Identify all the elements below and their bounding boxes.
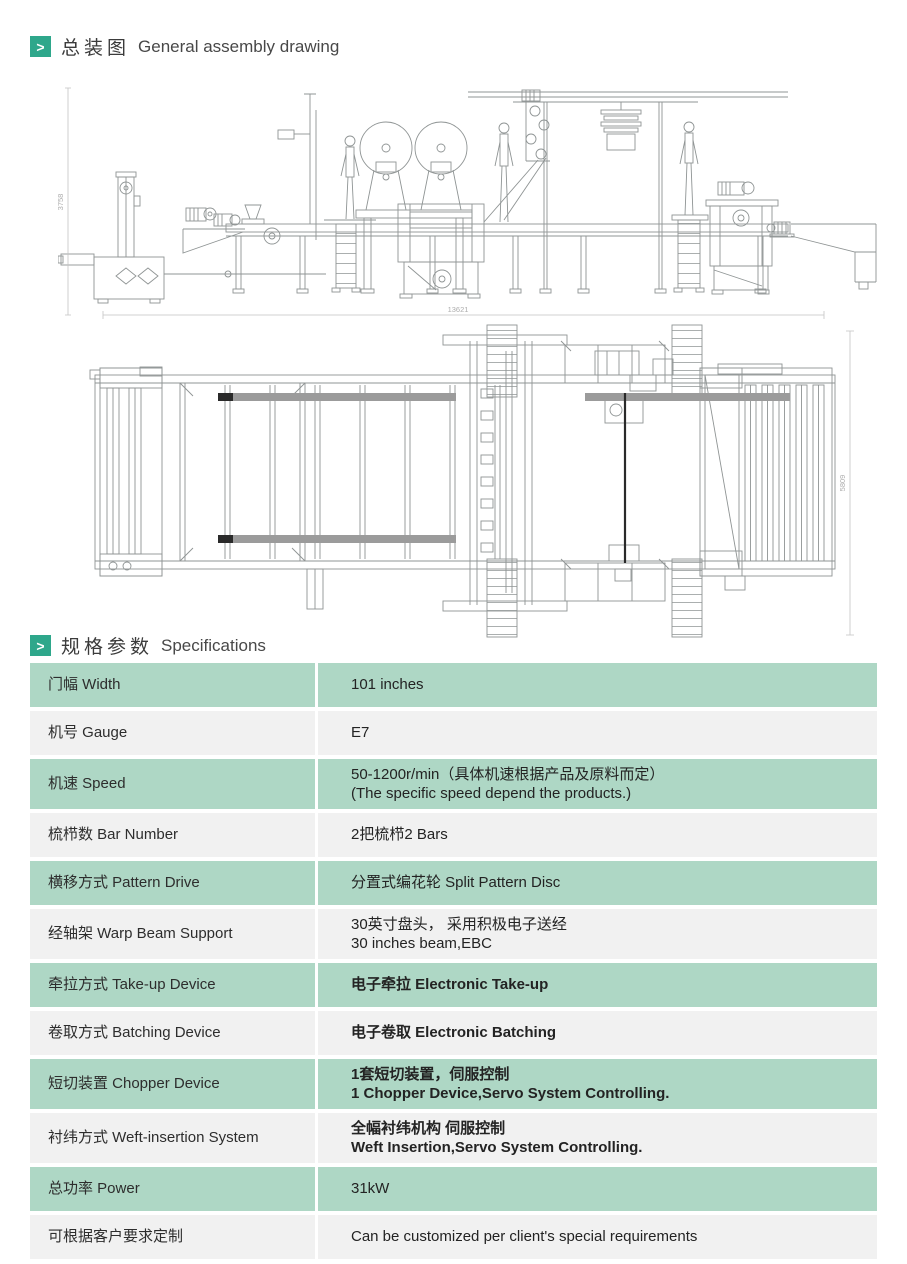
spec-row: 可根据客户要求定制Can be customized per client's …	[30, 1215, 877, 1259]
chevron-icon: >	[30, 36, 51, 57]
spec-label: 总功率 Power	[30, 1167, 315, 1211]
spec-label: 短切装置 Chopper Device	[30, 1059, 315, 1109]
spec-label: 门幅 Width	[30, 663, 315, 707]
spec-row: 门幅 Width101 inches	[30, 663, 877, 707]
spec-value: Can be customized per client's special r…	[318, 1215, 877, 1259]
spec-value: 1套短切装置，伺服控制1 Chopper Device,Servo System…	[318, 1059, 877, 1109]
spec-value: E7	[318, 711, 877, 755]
specs-table: 门幅 Width101 inches机号 GaugeE7机速 Speed50-1…	[30, 663, 877, 1259]
spec-value: 全幅衬纬机构 伺服控制Weft Insertion,Servo System C…	[318, 1113, 877, 1163]
dim-width-label: 5809	[838, 475, 847, 492]
spec-row: 横移方式 Pattern Drive分置式编花轮 Split Pattern D…	[30, 861, 877, 905]
spec-value: 电子卷取 Electronic Batching	[318, 1011, 877, 1055]
spec-value: 50-1200r/min（具体机速根据产品及原料而定）(The specific…	[318, 759, 877, 809]
spec-row: 衬纬方式 Weft-insertion System全幅衬纬机构 伺服控制Wef…	[30, 1113, 877, 1163]
spec-row: 短切装置 Chopper Device1套短切装置，伺服控制1 Chopper …	[30, 1059, 877, 1109]
spec-label: 可根据客户要求定制	[30, 1215, 315, 1259]
spec-label: 经轴架 Warp Beam Support	[30, 909, 315, 959]
catalog-page: > 总装图 General assembly drawing	[0, 0, 907, 1264]
spec-label: 横移方式 Pattern Drive	[30, 861, 315, 905]
section-title-zh: 规格参数	[61, 632, 153, 659]
general-assembly-plan-view-drawing: 5809	[85, 323, 875, 646]
dim-length-label: 13621	[448, 305, 469, 314]
general-assembly-side-view-drawing: 3758 13621	[58, 84, 882, 329]
section-title-zh: 总装图	[61, 33, 130, 60]
spec-label: 卷取方式 Batching Device	[30, 1011, 315, 1055]
spec-value: 2把梳栉2 Bars	[318, 813, 877, 857]
spec-label: 机速 Speed	[30, 759, 315, 809]
spec-label: 衬纬方式 Weft-insertion System	[30, 1113, 315, 1163]
spec-label: 牵拉方式 Take-up Device	[30, 963, 315, 1007]
dim-height-label: 3758	[58, 194, 65, 211]
section-title-en: General assembly drawing	[138, 37, 339, 57]
section-header-specs: > 规格参数 Specifications	[30, 632, 266, 659]
spec-row: 经轴架 Warp Beam Support30英寸盘头， 采用积极电子送经30 …	[30, 909, 877, 959]
section-header-assembly: > 总装图 General assembly drawing	[30, 33, 339, 60]
spec-value: 电子牵拉 Electronic Take-up	[318, 963, 877, 1007]
spec-row: 机号 GaugeE7	[30, 711, 877, 755]
spec-value: 101 inches	[318, 663, 877, 707]
spec-row: 机速 Speed50-1200r/min（具体机速根据产品及原料而定）(The …	[30, 759, 877, 809]
chevron-icon: >	[30, 635, 51, 656]
spec-value: 31kW	[318, 1167, 877, 1211]
spec-label: 机号 Gauge	[30, 711, 315, 755]
spec-row: 牵拉方式 Take-up Device电子牵拉 Electronic Take-…	[30, 963, 877, 1007]
spec-value: 30英寸盘头， 采用积极电子送经30 inches beam,EBC	[318, 909, 877, 959]
section-title-en: Specifications	[161, 636, 266, 656]
spec-label: 梳栉数 Bar Number	[30, 813, 315, 857]
spec-row: 梳栉数 Bar Number2把梳栉2 Bars	[30, 813, 877, 857]
spec-row: 总功率 Power31kW	[30, 1167, 877, 1211]
spec-value: 分置式编花轮 Split Pattern Disc	[318, 861, 877, 905]
spec-row: 卷取方式 Batching Device电子卷取 Electronic Batc…	[30, 1011, 877, 1055]
